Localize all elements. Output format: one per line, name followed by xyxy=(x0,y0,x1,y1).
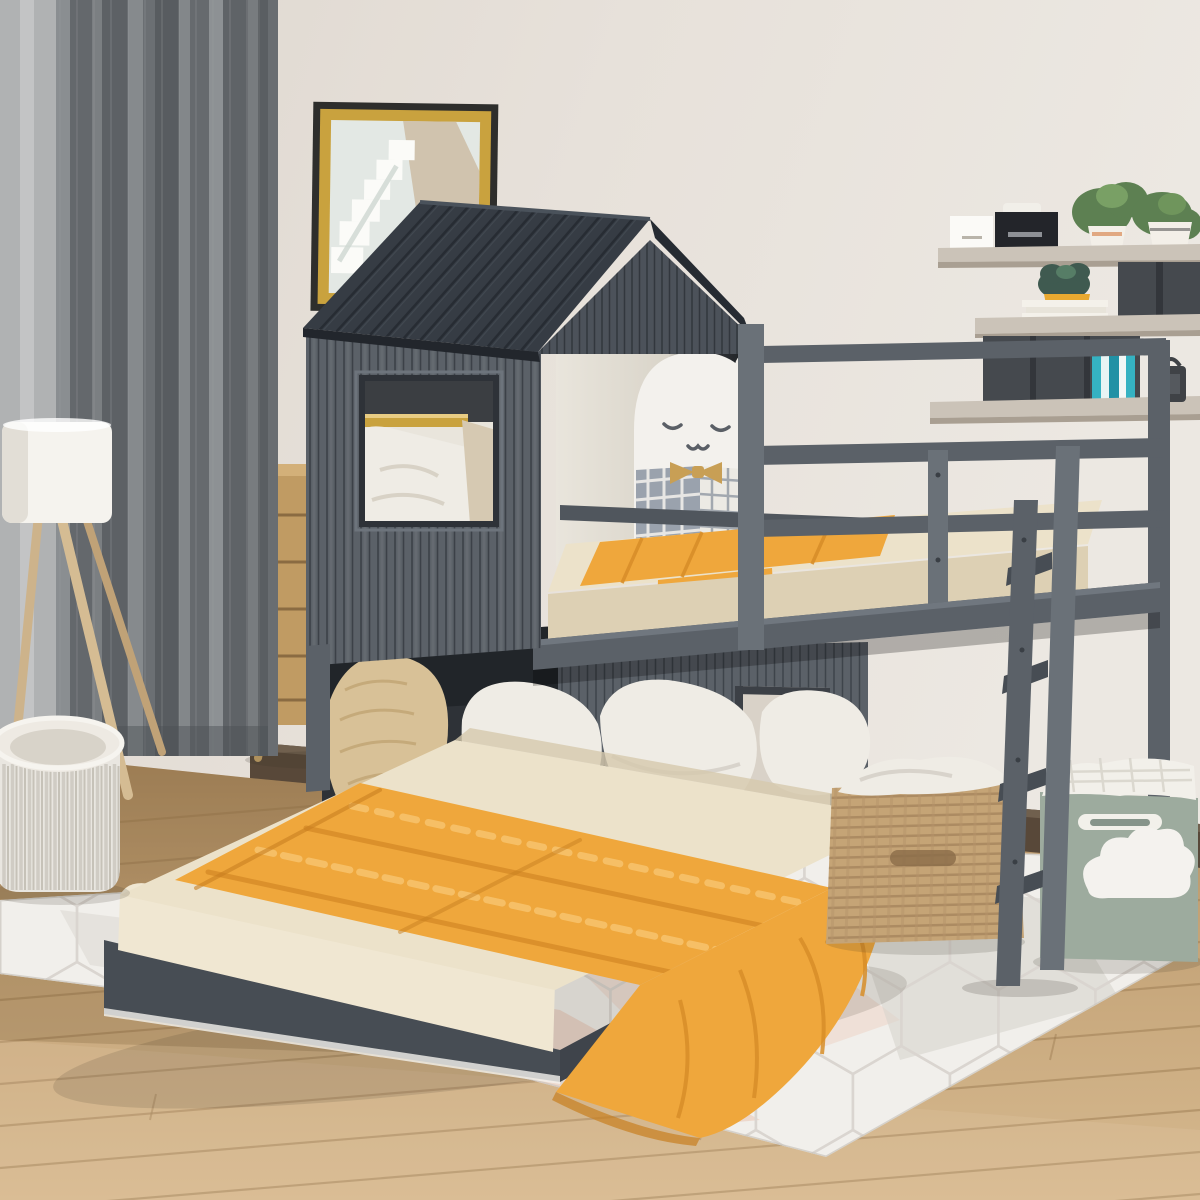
bedroom-photo xyxy=(0,0,1200,1200)
gray-curtain xyxy=(0,0,278,756)
wicker-storage-basket xyxy=(825,757,1025,955)
house-window xyxy=(356,372,502,530)
house-corner-post xyxy=(738,324,764,650)
scene-svg xyxy=(0,0,1200,1200)
rattan-basket-chair xyxy=(0,718,130,905)
right-back-post xyxy=(1148,340,1170,822)
house-front-wall xyxy=(306,326,541,669)
front-left-post xyxy=(306,644,330,792)
